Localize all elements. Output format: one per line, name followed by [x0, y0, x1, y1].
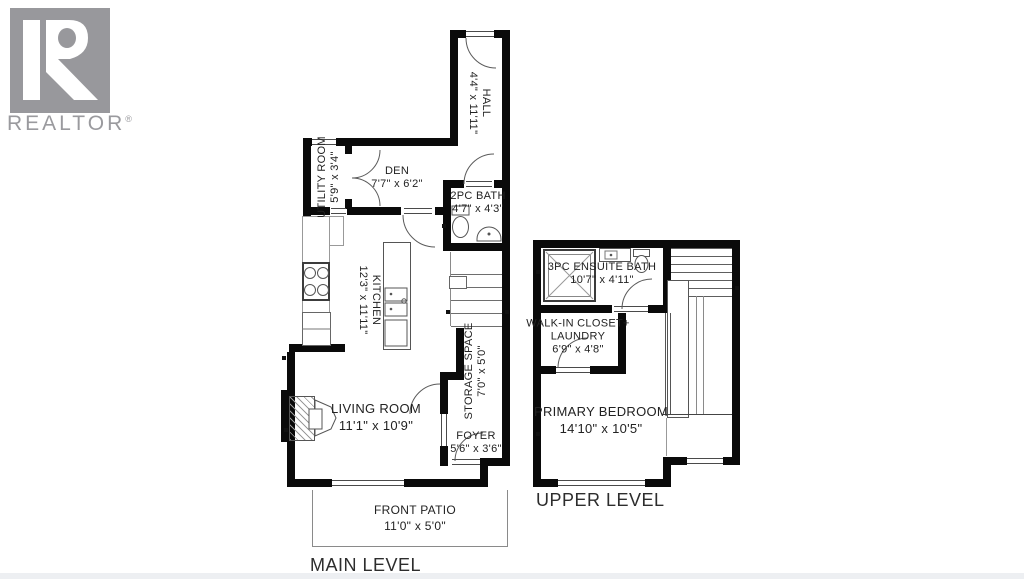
room-name: DEN	[371, 165, 422, 178]
sink-vanity-icon	[599, 248, 631, 262]
front-door-sill	[452, 459, 480, 465]
room-dims: 11'0" x 5'0"	[374, 518, 456, 534]
room-label-hall: HALL 4'4" x 11'11"	[466, 72, 492, 135]
fridge-icon	[302, 312, 331, 346]
wall-segment	[732, 240, 740, 465]
wall-segment	[440, 372, 464, 380]
window-sill	[558, 480, 645, 486]
room-label-living: LIVING ROOM 11'1" x 10'9"	[331, 400, 421, 434]
wall-segment	[404, 479, 488, 487]
door-sill	[556, 367, 590, 373]
room-dims: 7'0" x 5'0"	[476, 322, 489, 419]
fireplace-icon	[289, 396, 315, 441]
room-name: STORAGE SPACE	[463, 322, 476, 419]
room-dims: 11'1" x 10'9"	[331, 417, 421, 434]
toilet-bowl	[453, 217, 469, 238]
image-edge-strip	[0, 573, 1024, 579]
wall-segment	[303, 138, 311, 217]
wall-segment	[450, 30, 458, 146]
railing-line	[665, 313, 666, 414]
room-name: LIVING ROOM	[331, 400, 421, 417]
room-dims: 4'4" x 11'11"	[466, 72, 479, 135]
room-name: 2PC BATH	[450, 190, 505, 203]
dimension-tick	[505, 310, 509, 314]
registered-mark: ®	[125, 114, 132, 124]
room-name: HALL	[479, 72, 492, 135]
dimension-tick	[442, 224, 446, 228]
plan-detail-overlay	[0, 0, 1024, 579]
stairs-line	[696, 296, 697, 414]
room-dims: 6'9" x 4'8"	[526, 344, 629, 357]
door-arc	[466, 38, 496, 68]
wall-segment	[533, 240, 541, 487]
wall-segment	[533, 240, 740, 248]
room-label-closet: WALK-IN CLOSET+ LAUNDRY 6'9" x 4'8"	[526, 318, 629, 357]
door-arc	[464, 154, 494, 184]
wall-segment	[281, 390, 289, 442]
wall-segment	[663, 457, 671, 487]
railing-line	[670, 313, 671, 414]
room-name: FOYER	[450, 430, 501, 443]
wall-segment	[480, 458, 488, 487]
stairs-line	[703, 296, 704, 414]
realtor-brand: REALTOR	[7, 112, 125, 135]
floorplan-page: REALTOR®	[0, 0, 1024, 579]
wall-segment	[494, 180, 510, 188]
room-name: FRONT PATIO	[374, 502, 456, 518]
wall-segment	[443, 243, 510, 251]
stairs-line	[663, 414, 732, 415]
dimension-tick	[735, 286, 739, 290]
wall-segment	[443, 180, 464, 188]
patio-edge	[312, 546, 508, 547]
wall-segment	[287, 479, 332, 487]
door-sill	[466, 31, 494, 37]
wall-segment	[336, 138, 458, 146]
room-dims: 5'9" x 3'4"	[329, 136, 342, 218]
toilet-tank	[633, 249, 650, 257]
dimension-tick	[284, 428, 288, 432]
sink-icon	[477, 227, 501, 241]
realtor-logo-icon	[10, 8, 110, 113]
room-dims: 5'6" x 3'6"	[450, 443, 501, 456]
wall-segment	[440, 380, 448, 414]
room-dims: 7'7" x 6'2"	[371, 178, 422, 191]
dimension-tick	[536, 270, 540, 274]
realtor-logo	[10, 8, 110, 113]
room-label-kitchen: KITCHEN 12'3" x 11'11"	[356, 265, 382, 334]
room-dims: 10'7" x 4'11"	[548, 274, 657, 287]
wall-segment	[347, 207, 401, 215]
room-name: WALK-IN CLOSET+ LAUNDRY	[526, 318, 629, 344]
wall-segment	[723, 457, 740, 465]
door-sill	[404, 208, 432, 214]
room-label-ensuite: 3PC ENSUITE BATH 10'7" x 4'11"	[548, 261, 657, 287]
door-sill	[441, 414, 447, 446]
door-sill	[466, 181, 492, 187]
wall-segment	[345, 146, 352, 154]
room-name: PRIMARY BEDROOM	[534, 403, 668, 420]
room-label-patio: FRONT PATIO 11'0" x 5'0"	[374, 502, 456, 534]
room-label-storage: STORAGE SPACE 7'0" x 5'0"	[463, 322, 489, 419]
window-sill	[332, 480, 404, 486]
room-name: KITCHEN	[369, 265, 382, 334]
room-label-den: DEN 7'7" x 6'2"	[371, 165, 422, 191]
room-label-utility: UTILITY ROOM 5'9" x 3'4"	[316, 136, 342, 218]
stove-icon	[302, 262, 330, 301]
room-dims: 12'3" x 11'11"	[356, 265, 369, 334]
wall-segment	[440, 446, 448, 466]
realtor-logo-text: REALTOR®	[7, 112, 132, 136]
wall-segment	[533, 479, 558, 487]
room-name: 3PC ENSUITE BATH	[548, 261, 657, 274]
kitchen-island	[383, 242, 411, 350]
dimension-tick	[446, 310, 450, 314]
door-sill	[614, 306, 648, 312]
upper-level-label: UPPER LEVEL	[536, 490, 665, 511]
patio-edge	[312, 490, 313, 547]
wall-segment	[533, 366, 556, 374]
sink-drain	[488, 233, 491, 236]
window-sill	[687, 458, 723, 464]
stairs-landing	[449, 276, 467, 289]
dimension-tick	[282, 356, 286, 360]
wall-segment	[648, 305, 663, 313]
room-dims: 14'10" x 10'5"	[534, 420, 668, 437]
room-dims: 4'7" x 4'3"	[450, 203, 505, 216]
room-label-bedroom: PRIMARY BEDROOM 14'10" x 10'5"	[534, 403, 668, 437]
room-name: UTILITY ROOM	[316, 136, 329, 218]
wall-segment	[590, 366, 626, 374]
wall-segment	[533, 305, 612, 313]
patio-edge	[507, 490, 508, 547]
room-label-foyer: FOYER 5'6" x 3'6"	[450, 430, 501, 456]
room-label-2pc-bath: 2PC BATH 4'7" x 4'3"	[450, 190, 505, 216]
